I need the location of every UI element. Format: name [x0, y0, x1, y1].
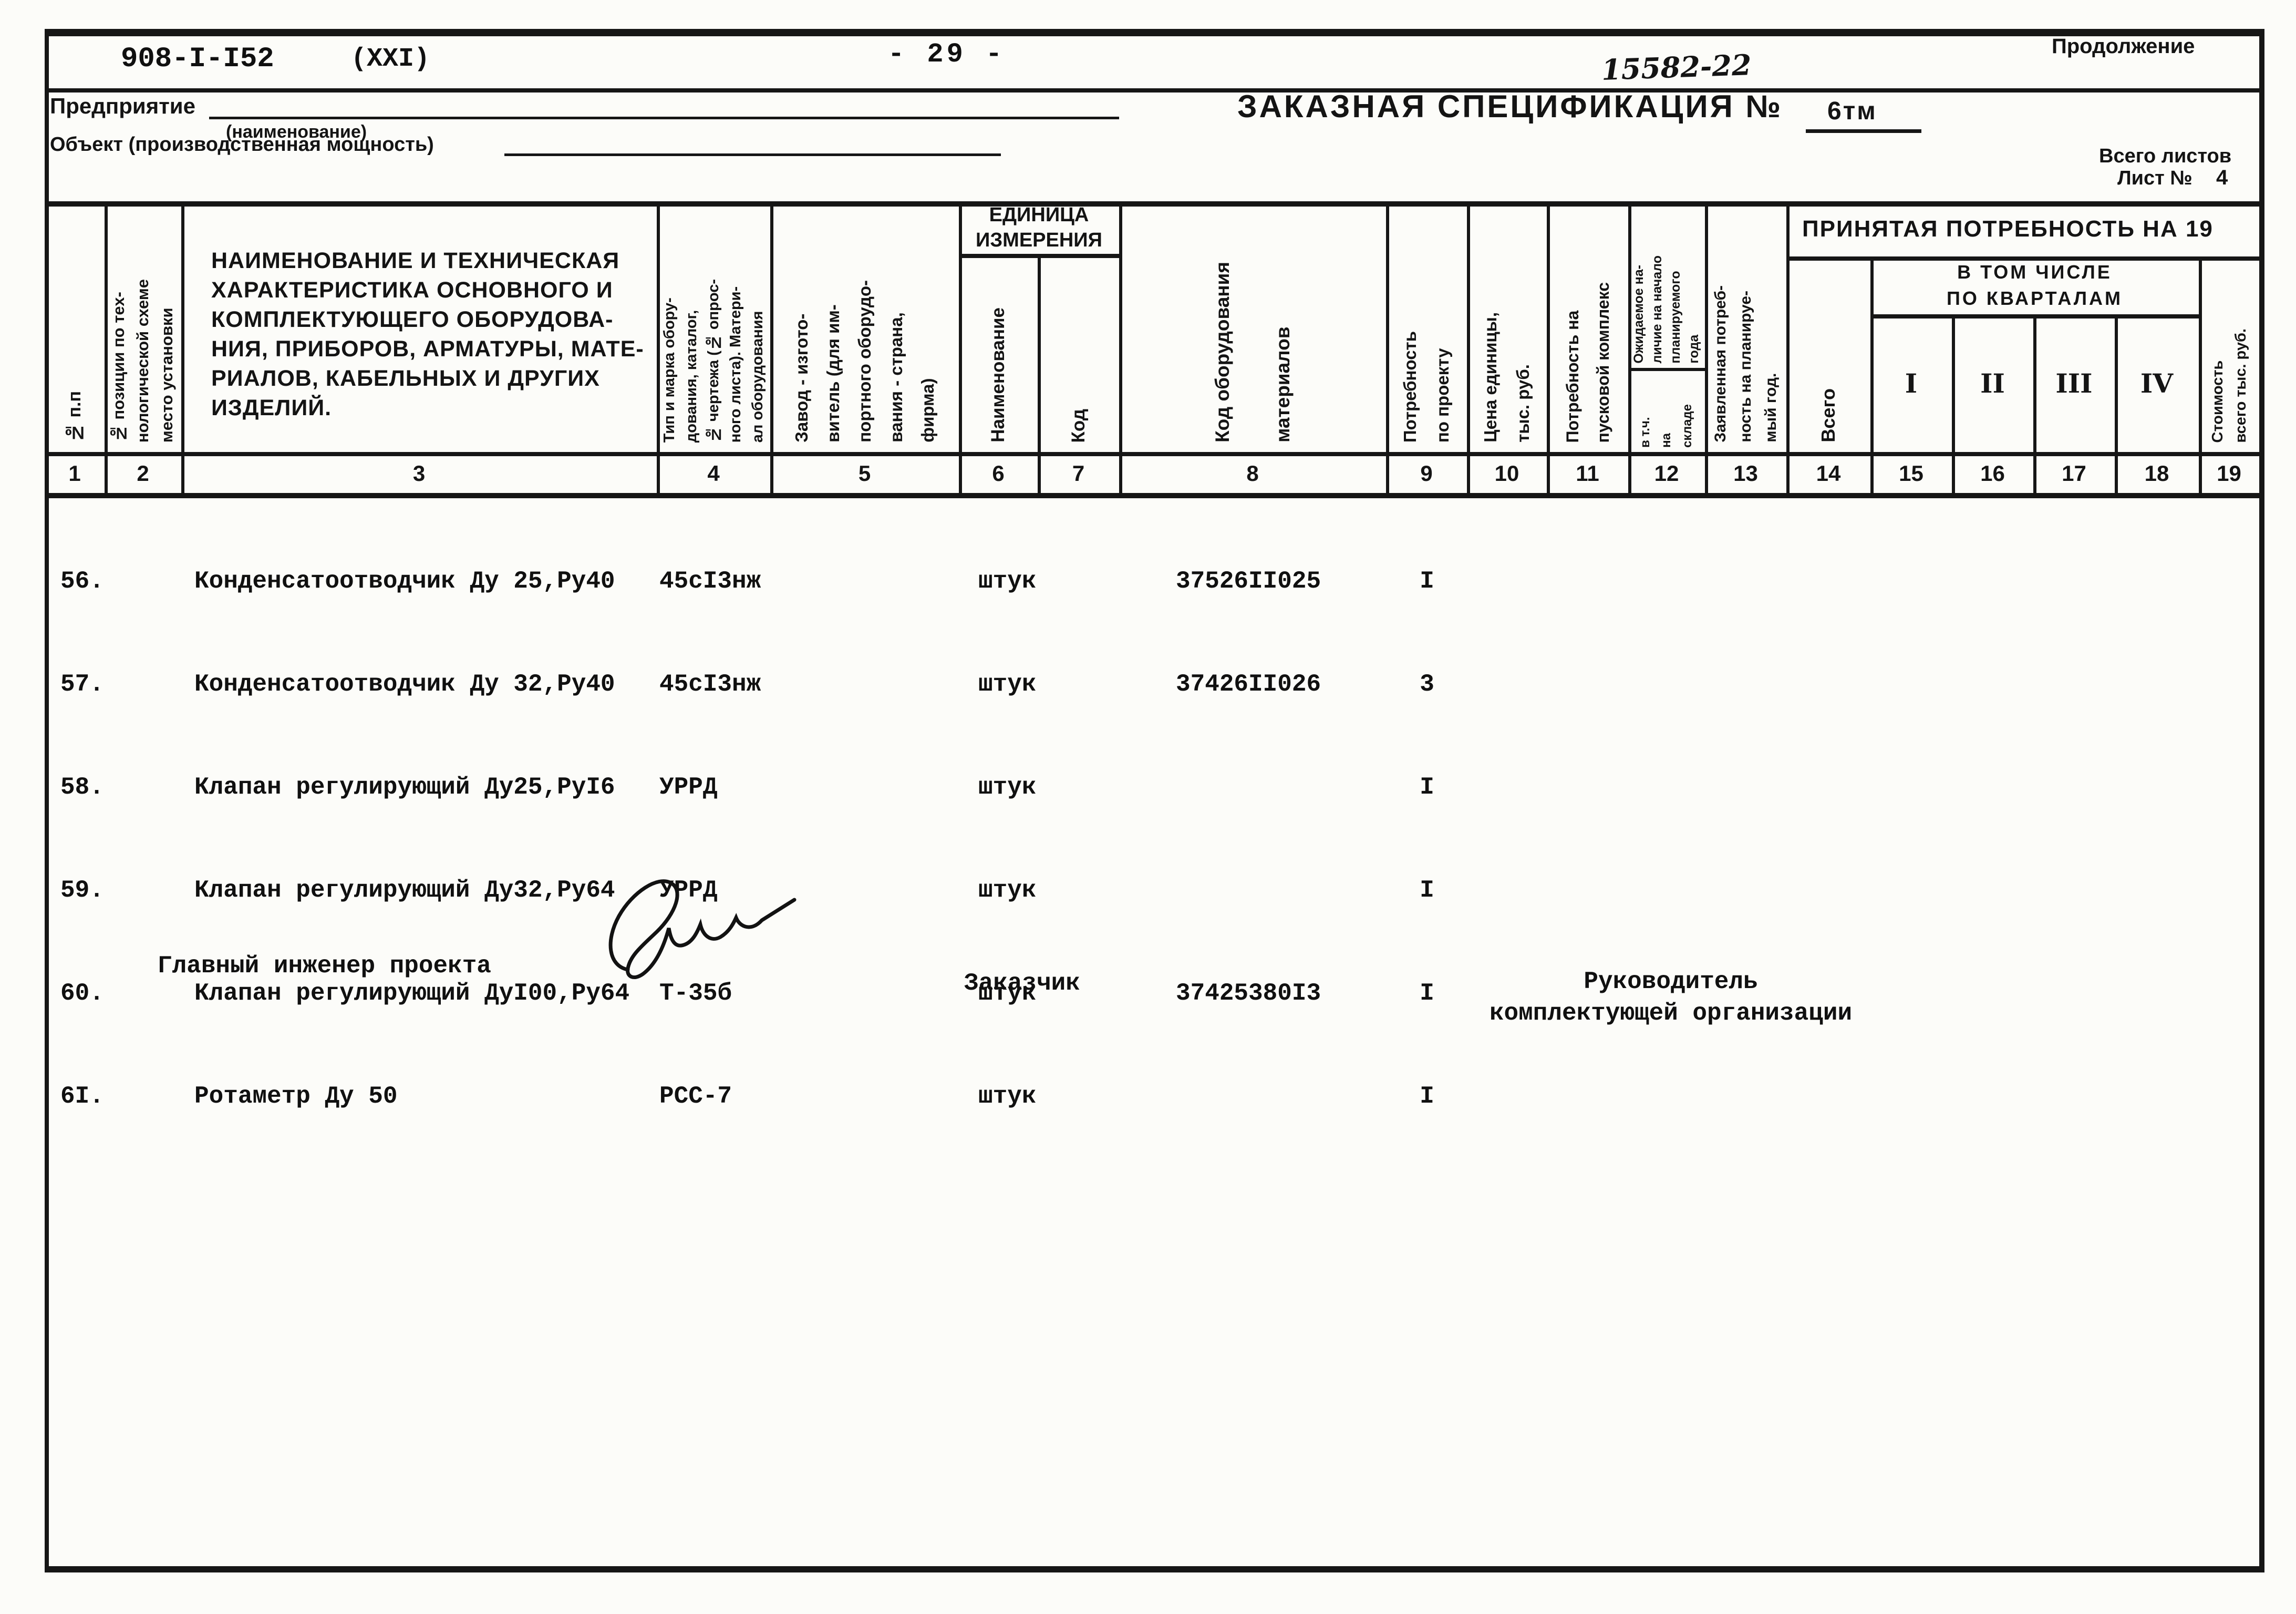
- total-sheets-label: Всего листов: [2099, 145, 2231, 168]
- row-type: 45сI3нж: [659, 568, 761, 595]
- band-divider-line: [45, 88, 2264, 92]
- row-number: 56.: [60, 568, 104, 595]
- col-header-6-label: Наименование: [988, 307, 1009, 443]
- col-header-12-sub-label: в т.ч. на складе: [1635, 404, 1698, 448]
- col-header-17: III: [2033, 314, 2115, 452]
- col-header-15: I: [1870, 314, 1952, 452]
- row-qty: I: [1387, 980, 1467, 1007]
- col-header-9: Потребность по проекту: [1386, 201, 1467, 452]
- col-number-7: 7: [1038, 454, 1119, 493]
- spec-number-underline: [1806, 129, 1921, 133]
- col-header-11: Потребность на пусковой комплекс: [1547, 201, 1628, 452]
- frame-bottom-line: [45, 1566, 2264, 1572]
- row-qty: I: [1387, 1083, 1467, 1110]
- sheet-label: Лист №: [2117, 167, 2192, 190]
- header-bottom-line: [45, 493, 2264, 498]
- col-header-16: II: [1952, 314, 2033, 452]
- row-type: УРРД: [659, 774, 717, 801]
- row-unit: штук: [978, 877, 1036, 904]
- row-code: 37426II026: [1176, 671, 1321, 698]
- col-header-10-label: Цена единицы, тыс. руб.: [1474, 312, 1539, 443]
- col-header-10: Цена единицы, тыс. руб.: [1467, 201, 1547, 452]
- col-number-13: 13: [1705, 454, 1786, 493]
- col-number-2: 2: [105, 454, 181, 493]
- col-header-4-label: Тип и марка обору- дования, каталог, № ч…: [658, 279, 769, 443]
- col-header-14: Всего: [1786, 256, 1870, 452]
- doc-number: 908-I-I52: [121, 43, 274, 75]
- col-header-1: № п.п: [45, 201, 105, 452]
- row-type: РСС-7: [659, 1083, 732, 1110]
- row-code: 37425380I3: [1176, 980, 1321, 1007]
- table-row: 57. Конденсатоотводчик Ду 32,Ру40 45сI3н…: [0, 671, 2296, 713]
- col-header-13-label: Заявленная потреб- ность на планируе- мы…: [1708, 285, 1784, 443]
- col-header-14-label: Всего: [1817, 388, 1839, 443]
- col-header-2: № позиции по тех- нологической схеме мес…: [105, 201, 181, 452]
- col-header-2-label: № позиции по тех- нологической схеме мес…: [107, 279, 179, 443]
- col-header-3: НАИМЕНОВАНИЕ И ТЕХНИЧЕСКАЯ ХАРАКТЕРИСТИК…: [211, 246, 653, 423]
- supply-head-label: Руководитель комплектующей организации: [1461, 966, 1881, 1029]
- customer-label: Заказчик: [964, 970, 1080, 997]
- handwritten-order-number: 15582-22: [1601, 48, 1752, 87]
- row-number: 59.: [60, 877, 104, 904]
- row-qty: I: [1387, 877, 1467, 904]
- col-header-8: Код оборудования материалов: [1119, 201, 1386, 452]
- col-number-11: 11: [1547, 454, 1628, 493]
- col-number-18: 18: [2115, 454, 2199, 493]
- col-header-7: Код: [1038, 254, 1119, 452]
- col-header-13: Заявленная потреб- ность на планируе- мы…: [1705, 201, 1786, 452]
- col-header-8-label: Код оборудования материалов: [1192, 262, 1313, 443]
- row-number: 58.: [60, 774, 104, 801]
- unit-group-header: ЕДИНИЦА ИЗМЕРЕНИЯ: [959, 201, 1119, 254]
- table-row: 60. Клапан регулирующий ДуI00,Ру64 Т-35б…: [0, 980, 2296, 1022]
- row-unit: штук: [978, 1083, 1036, 1110]
- page-number: - 29 -: [888, 39, 1005, 70]
- col-header-1-label: № п.п: [65, 391, 85, 443]
- col-number-1: 1: [45, 454, 105, 493]
- col-header-5-label: Завод - изгото- витель (для им- портного…: [786, 280, 944, 443]
- col-number-14: 14: [1786, 454, 1870, 493]
- col-number-9: 9: [1386, 454, 1467, 493]
- col-number-17: 17: [2033, 454, 2115, 493]
- row-unit: штук: [978, 671, 1036, 698]
- col-number-5: 5: [770, 454, 959, 493]
- col-number-12: 12: [1628, 454, 1705, 493]
- row-number: 57.: [60, 671, 104, 698]
- col-number-10: 10: [1467, 454, 1547, 493]
- accepted-group-header: ПРИНЯТАЯ ПОТРЕБНОСТЬ НА 19: [1786, 201, 2259, 256]
- col-header-18: IV: [2115, 314, 2199, 452]
- col-number-19: 19: [2199, 454, 2259, 493]
- sheet-number: 4: [2216, 166, 2228, 190]
- col-number-6: 6: [959, 454, 1038, 493]
- col-header-11-label: Потребность на пусковой комплекс: [1557, 282, 1618, 443]
- col-header-4: Тип и марка обору- дования, каталог, № ч…: [657, 201, 770, 452]
- row-number: 6I.: [60, 1083, 104, 1110]
- col-number-3: 3: [181, 454, 657, 493]
- table-row: 56. Конденсатоотводчик Ду 25,Ру40 45сI3н…: [0, 568, 2296, 610]
- col-number-16: 16: [1952, 454, 2033, 493]
- table-row: 59. Клапан регулирующий Ду32,Ру64 УРРД ш…: [0, 877, 2296, 919]
- col-header-12: Ожидаемое на- личие на начало планируемо…: [1628, 201, 1705, 368]
- row-name: Конденсатоотводчик Ду 32,Ру40: [194, 671, 615, 698]
- col-header-12-label: Ожидаемое на- личие на начало планируемо…: [1630, 255, 1703, 364]
- col-header-9-label: Потребность по проекту: [1394, 331, 1459, 443]
- spec-number: 6тм: [1827, 97, 1877, 126]
- row-number: 60.: [60, 980, 104, 1007]
- row-name: Конденсатоотводчик Ду 25,Ру40: [194, 568, 615, 595]
- object-blank-line: [504, 153, 1001, 156]
- quarters-group-header: В ТОМ ЧИСЛЕ ПО КВАРТАЛАМ: [1870, 256, 2199, 314]
- col-number-8: 8: [1119, 454, 1386, 493]
- row-name: Клапан регулирующий Ду25,РуI6: [194, 774, 615, 801]
- row-qty: I: [1387, 568, 1467, 595]
- col-header-12-sub: в т.ч. на складе: [1628, 371, 1705, 452]
- col-number-4: 4: [657, 454, 770, 493]
- scanned-specification-sheet: 908-I-I52 (XXI) - 29 - 15582-22 Продолже…: [0, 0, 2296, 1614]
- frame-top-line: [45, 29, 2264, 36]
- row-qty: I: [1387, 774, 1467, 801]
- row-name: Ротаметр Ду 50: [194, 1083, 397, 1110]
- col-header-19-label: Стоимость всего тыс. руб.: [2206, 328, 2252, 443]
- row-name: Клапан регулирующий ДуI00,Ру64: [194, 980, 629, 1007]
- object-label: Объект (производственная мощность): [50, 133, 434, 156]
- spec-title: ЗАКАЗНАЯ СПЕЦИФИКАЦИЯ №: [1237, 88, 1783, 125]
- col-header-19: Стоимость всего тыс. руб.: [2199, 256, 2259, 452]
- handwritten-signature: [578, 862, 825, 993]
- col-number-15: 15: [1870, 454, 1952, 493]
- enterprise-label: Предприятие: [50, 94, 195, 119]
- table-row: 6I. Ротаметр Ду 50 РСС-7 штук I: [0, 1083, 2296, 1125]
- chief-engineer-label: Главный инженер проекта: [158, 952, 491, 980]
- enterprise-blank-line: [209, 117, 1119, 119]
- table-row: 58. Клапан регулирующий Ду25,РуI6 УРРД ш…: [0, 774, 2296, 816]
- col-header-6: Наименование: [959, 254, 1038, 452]
- row-unit: штук: [978, 774, 1036, 801]
- col-header-5: Завод - изгото- витель (для им- портного…: [770, 201, 959, 452]
- row-name: Клапан регулирующий Ду32,Ру64: [194, 877, 615, 904]
- continuation-label: Продолжение: [2052, 35, 2195, 58]
- col-header-7-label: Код: [1068, 409, 1089, 443]
- row-type: 45сI3нж: [659, 671, 761, 698]
- doc-series: (XXI): [351, 44, 430, 74]
- row-qty: 3: [1387, 671, 1467, 698]
- row-code: 37526II025: [1176, 568, 1321, 595]
- row-unit: штук: [978, 568, 1036, 595]
